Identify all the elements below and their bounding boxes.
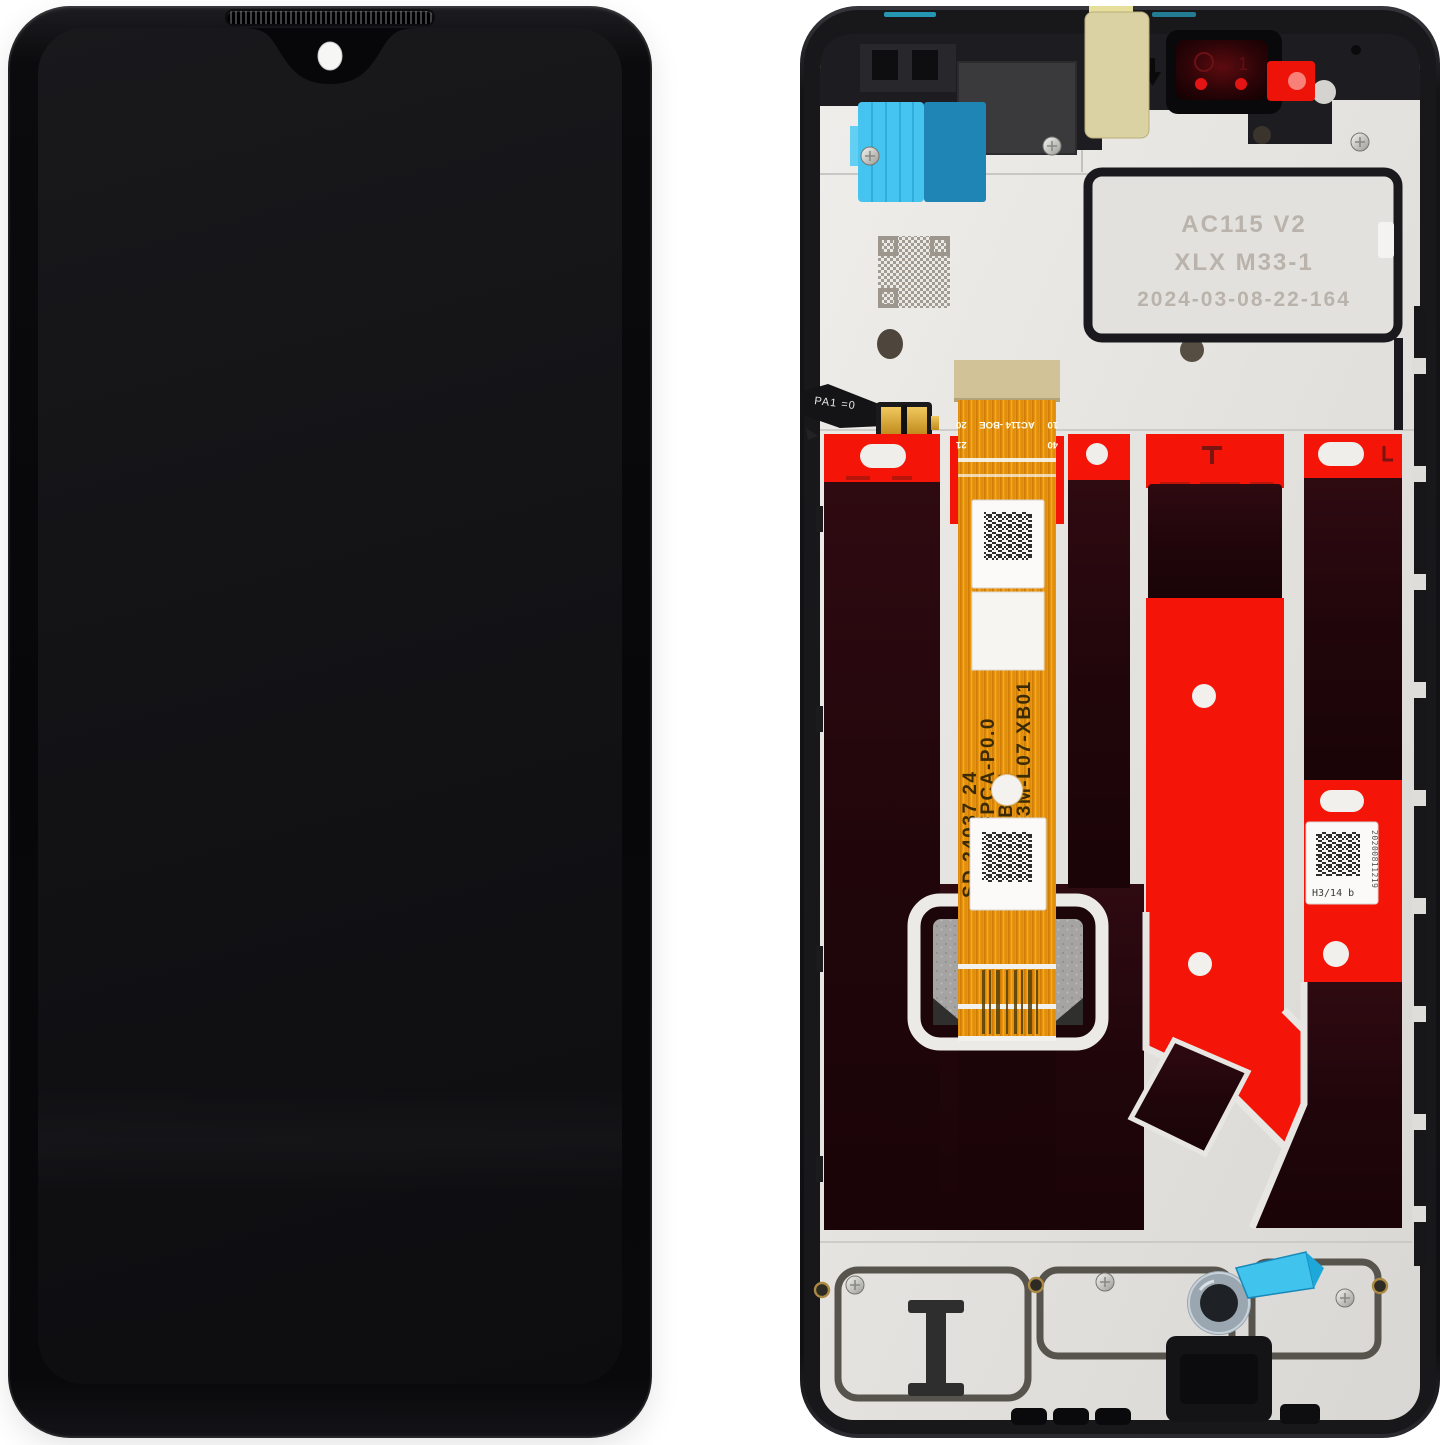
phone-front-view [8, 6, 652, 1438]
strip-d-hole-dot [1323, 941, 1349, 967]
strip-c-hole-dot-2 [1188, 952, 1212, 976]
screw [1043, 137, 1061, 155]
strip-c-black-segment [1148, 484, 1282, 602]
red-sticker-dot [1288, 72, 1306, 90]
screw [1336, 1289, 1354, 1307]
phone-back-view: 1 [800, 6, 1440, 1438]
main-flex-cable: AC114 -BOE 20 10 21 40 SD 24037 24 P6600… [954, 360, 1060, 1041]
strip-d-oval-cutout [1320, 790, 1364, 812]
flex-pin-top-left: 20 [956, 419, 967, 430]
flex-pin-bottom-left: 21 [955, 439, 966, 450]
screw [1096, 1273, 1114, 1291]
strip-d-cutout [1318, 442, 1364, 466]
flex-pin-center: AC114 -BOE [979, 419, 1034, 430]
strip-b-cutout [1086, 443, 1108, 465]
strip-a-body [824, 480, 940, 1230]
plate-hole [877, 329, 903, 359]
top-connector-cavity [872, 50, 898, 80]
etched-qr-code [878, 236, 950, 308]
camera-window [1176, 40, 1268, 100]
screw [1351, 133, 1369, 151]
screw [861, 147, 879, 165]
flex-label-upper [972, 500, 1044, 588]
flex-datamatrix-lower [982, 832, 1032, 882]
camera-red-dot-left [1195, 78, 1207, 90]
screw-hole [815, 1283, 829, 1297]
plate-pad-dot-2 [1253, 126, 1271, 144]
adhesive-strips-zone: H3/14 b 20200811219 AC114 -BOE [824, 360, 1402, 1230]
serial-label: H3/14 b 20200811219 [1306, 822, 1379, 904]
flex-datamatrix-upper [984, 512, 1032, 560]
flex-pin-bottom-right: 40 [1047, 439, 1058, 450]
flex-hole-dot [991, 774, 1023, 806]
strip-c-red-header [1146, 434, 1284, 488]
flex-ribbon [958, 400, 1056, 1040]
strip-a-cutout [860, 444, 906, 468]
front-camera-hole [318, 42, 342, 70]
screw-hole [1029, 1278, 1043, 1292]
screw-hole [1373, 1279, 1387, 1293]
serial-datamatrix-code [1316, 832, 1360, 876]
strip-d-body [1304, 476, 1402, 782]
plate-etch-line1: AC115 V2 [1181, 211, 1306, 238]
serial-label-code: H3/14 b [1312, 888, 1354, 899]
camera-mark-one: 1 [1238, 54, 1248, 74]
flex-pin-top-right: 10 [1047, 419, 1058, 430]
camera-red-dot-right [1235, 78, 1247, 90]
flex-blank-stiffener [972, 592, 1044, 670]
screw [846, 1276, 864, 1294]
top-edge-teal-sliver [884, 12, 936, 17]
plate-etch-line2: XLX M33-1 [1174, 249, 1313, 276]
front-screen [38, 28, 622, 1384]
right-edge-teeth [1412, 306, 1426, 1266]
top-edge-teal-sliver-2 [1152, 12, 1196, 17]
flex-top-stiffener [954, 360, 1060, 402]
serial-label-number: 20200811219 [1370, 830, 1379, 888]
plate-etch-line3: 2024-03-08-22-164 [1137, 288, 1351, 311]
khaki-sticker [1085, 6, 1149, 138]
flex-label-lower [970, 818, 1046, 910]
waterdrop-notch [242, 28, 418, 88]
strip-c-hole-dot [1192, 684, 1216, 708]
top-connector-cavity-2 [912, 50, 938, 80]
earpiece-speaker-grille [225, 9, 435, 26]
strip-c-red-body [1146, 598, 1284, 914]
strip-b-body [1068, 478, 1130, 888]
product-photo-stage: 1 [0, 0, 1445, 1445]
